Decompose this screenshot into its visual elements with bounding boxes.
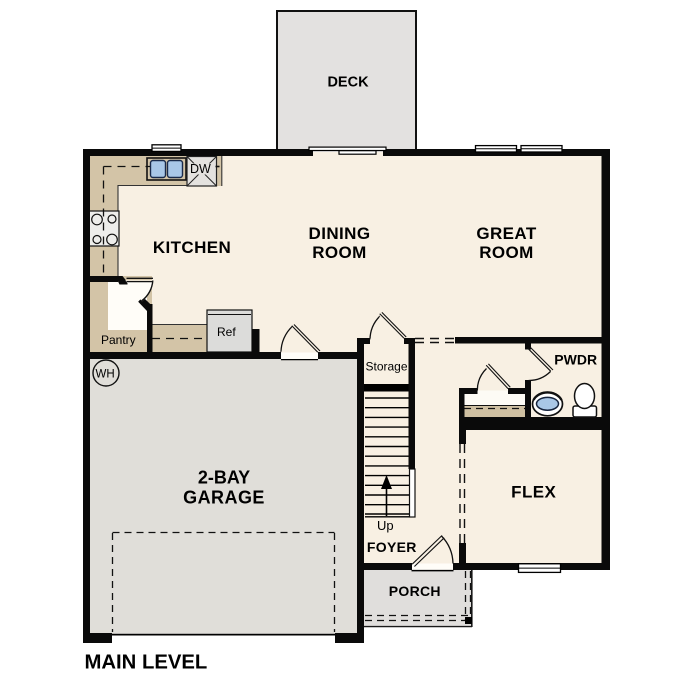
svg-text:PORCH: PORCH [389,583,441,599]
svg-text:2-BAY: 2-BAY [198,468,250,488]
svg-text:GREAT: GREAT [476,224,536,243]
svg-text:Storage: Storage [365,360,407,374]
svg-text:FLEX: FLEX [511,483,556,502]
svg-text:GARAGE: GARAGE [183,488,265,508]
svg-text:DECK: DECK [327,75,369,91]
svg-text:FOYER: FOYER [367,539,417,555]
svg-text:Up: Up [377,518,394,533]
svg-text:DINING: DINING [309,224,371,243]
svg-text:Pantry: Pantry [101,333,136,347]
svg-text:PWDR: PWDR [554,352,597,368]
svg-text:ROOM: ROOM [479,243,533,262]
svg-text:DW: DW [190,162,211,176]
svg-text:WH: WH [96,369,115,381]
svg-text:MAIN LEVEL: MAIN LEVEL [85,652,208,674]
svg-text:ROOM: ROOM [312,243,366,262]
svg-text:Ref: Ref [217,325,236,339]
svg-text:KITCHEN: KITCHEN [153,238,231,257]
